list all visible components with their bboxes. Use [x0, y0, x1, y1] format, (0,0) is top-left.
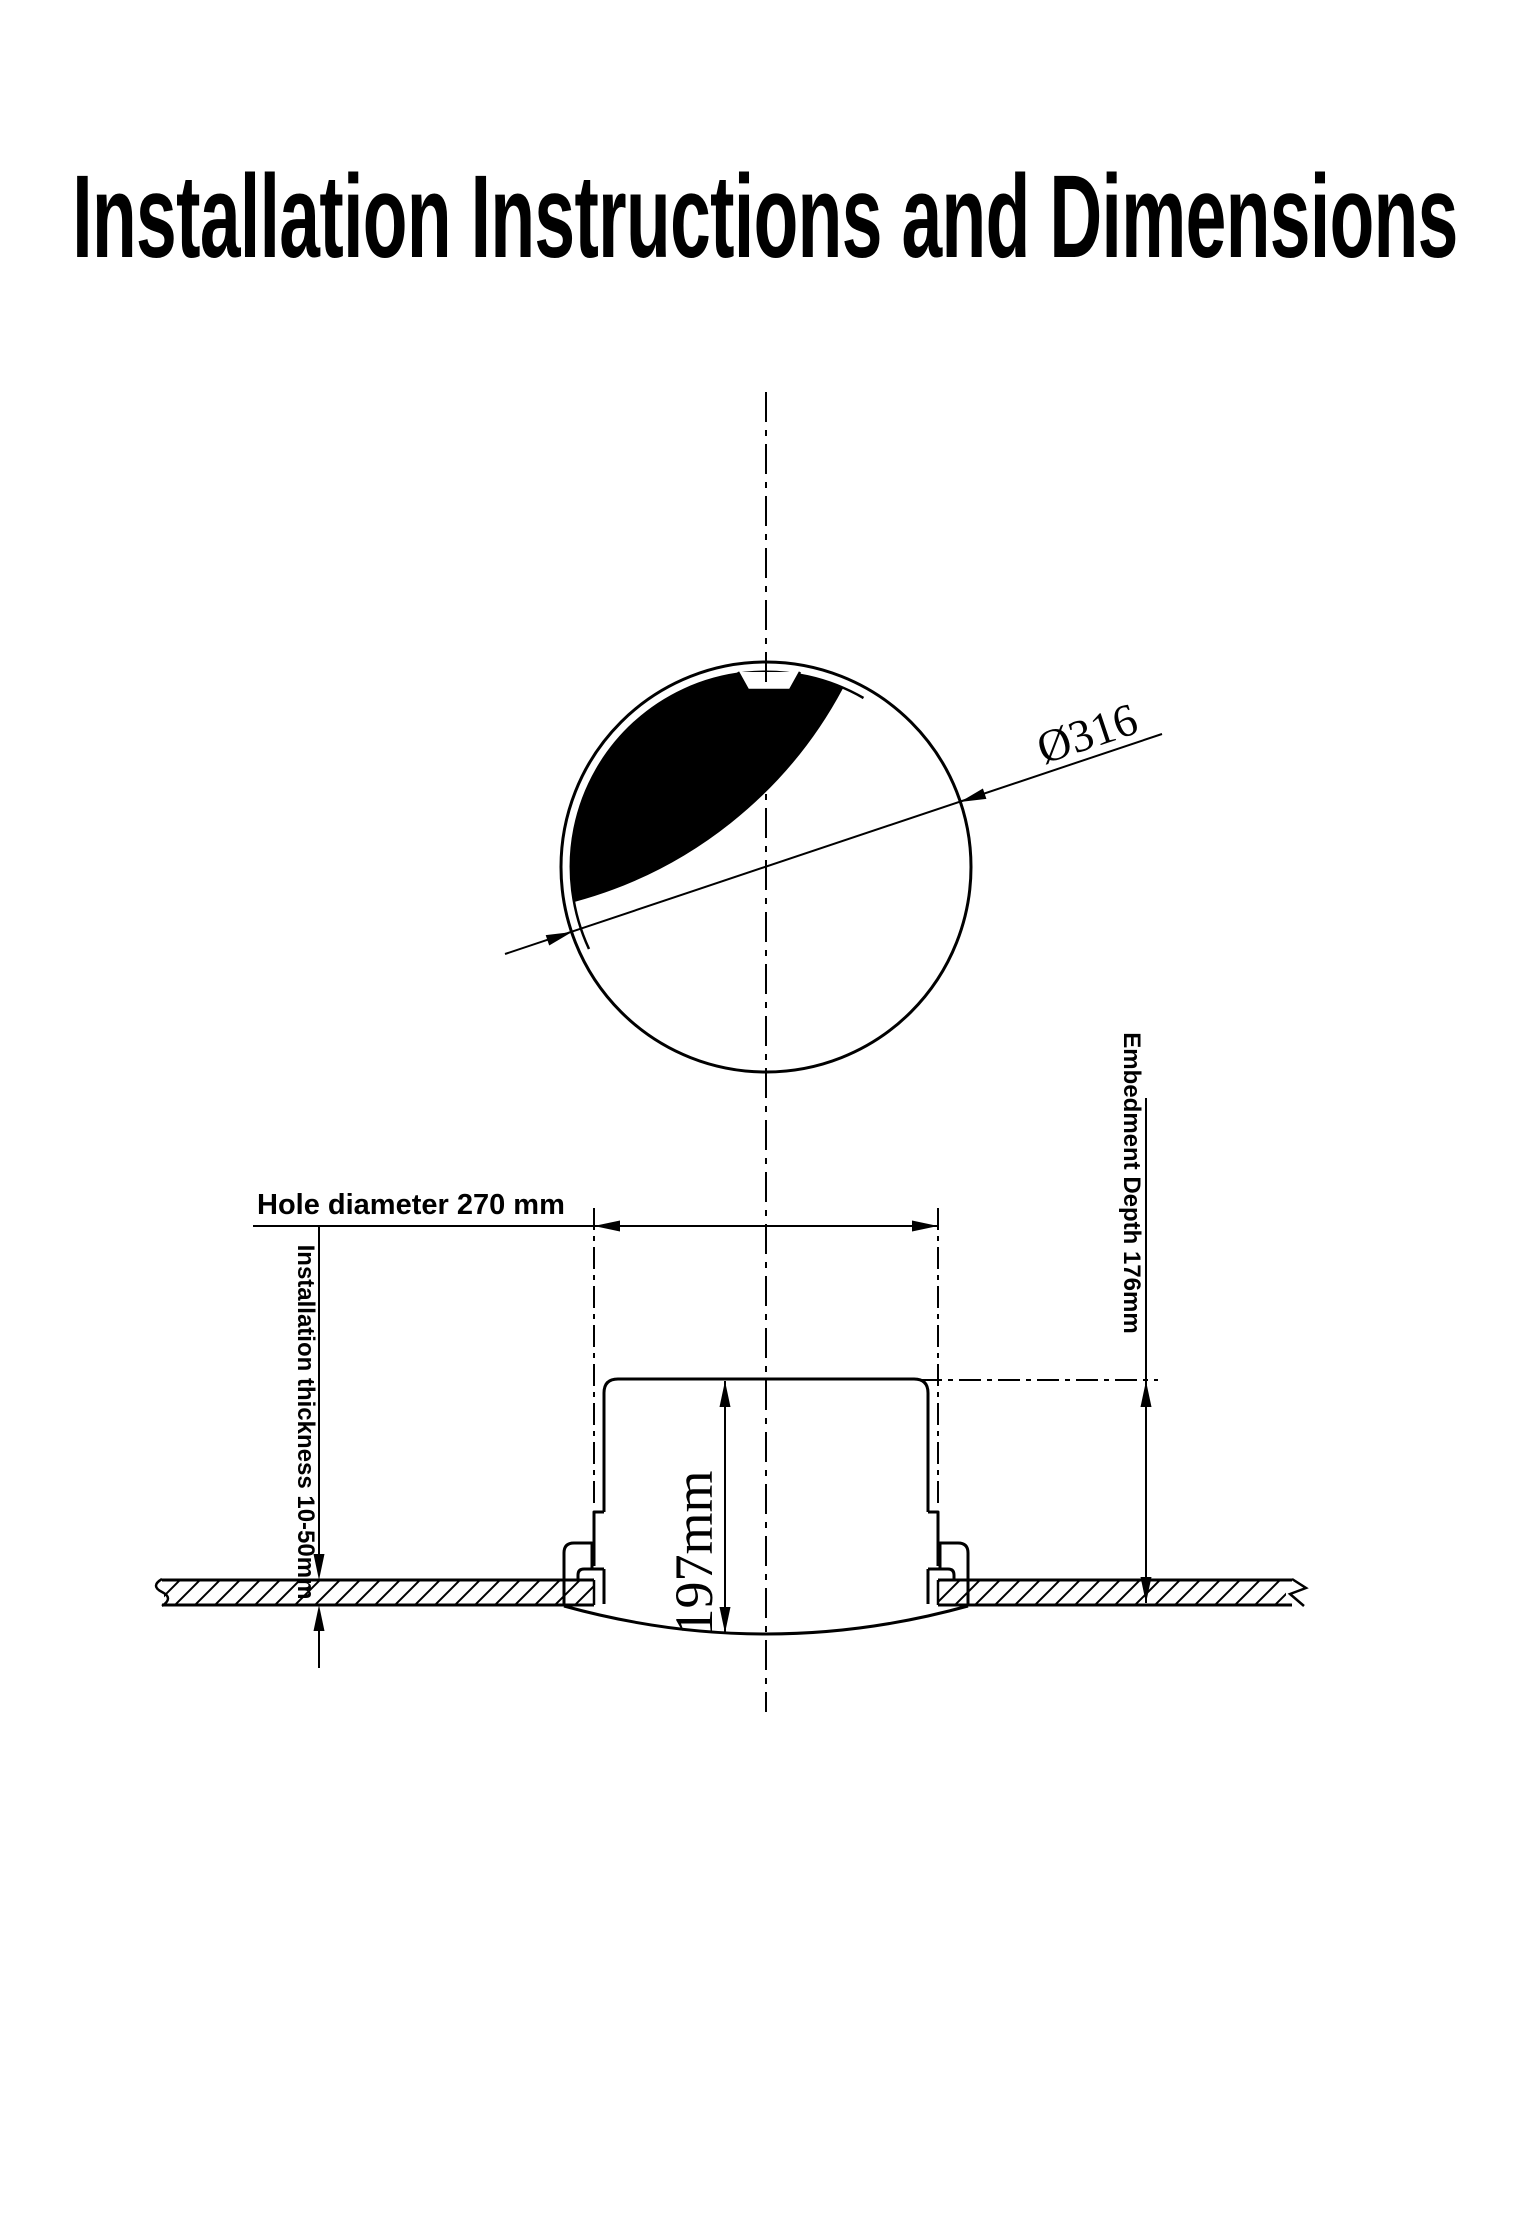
hole-diameter-arrow-right — [912, 1221, 938, 1232]
thickness-arrow-up — [314, 1605, 325, 1631]
installation-instructions-page: Installation Instructions and Dimensions… — [0, 0, 1530, 2240]
grille-top-notch — [738, 672, 800, 690]
clamp-right-inner — [928, 1569, 954, 1580]
clamp-left-inner — [578, 1569, 604, 1580]
body-height-arrow-up — [720, 1381, 731, 1407]
panel-right-hatch — [938, 1580, 1286, 1605]
body-height-label: 197mm — [664, 1470, 724, 1635]
hole-diameter-arrow-left — [594, 1221, 620, 1232]
diameter-arrow-right — [960, 789, 986, 803]
panel-left-hatch — [164, 1580, 594, 1605]
embedment-depth-dimension: Embedment Depth 176mm — [920, 1032, 1158, 1603]
body-left-step — [594, 1512, 604, 1566]
body-height-dimension: 197mm — [664, 1381, 731, 1636]
hole-diameter-dimension: Hole diameter 270 mm — [253, 1189, 938, 1232]
embedment-depth-label: Embedment Depth 176mm — [1118, 1032, 1145, 1333]
panel-right-break — [1290, 1579, 1306, 1606]
body-right-step — [928, 1512, 938, 1566]
embedment-arrow-up — [1141, 1381, 1152, 1407]
ceiling-panel-right — [938, 1579, 1306, 1606]
hole-diameter-label: Hole diameter 270 mm — [257, 1189, 565, 1221]
installation-thickness-label: Installation thickness 10-50mm — [292, 1245, 319, 1600]
ceiling-panel-left — [156, 1579, 594, 1606]
page-title: Installation Instructions and Dimensions — [72, 150, 1457, 282]
technical-drawing: Installation Instructions and Dimensions… — [0, 0, 1530, 2240]
top-view: Ø316 — [505, 662, 1162, 1072]
side-view: Hole diameter 270 mm Installation thickn… — [156, 1032, 1306, 1668]
diameter-arrow-left — [546, 932, 572, 946]
grille-shadow-sector — [571, 673, 842, 901]
diameter-label: Ø316 — [1031, 693, 1144, 774]
